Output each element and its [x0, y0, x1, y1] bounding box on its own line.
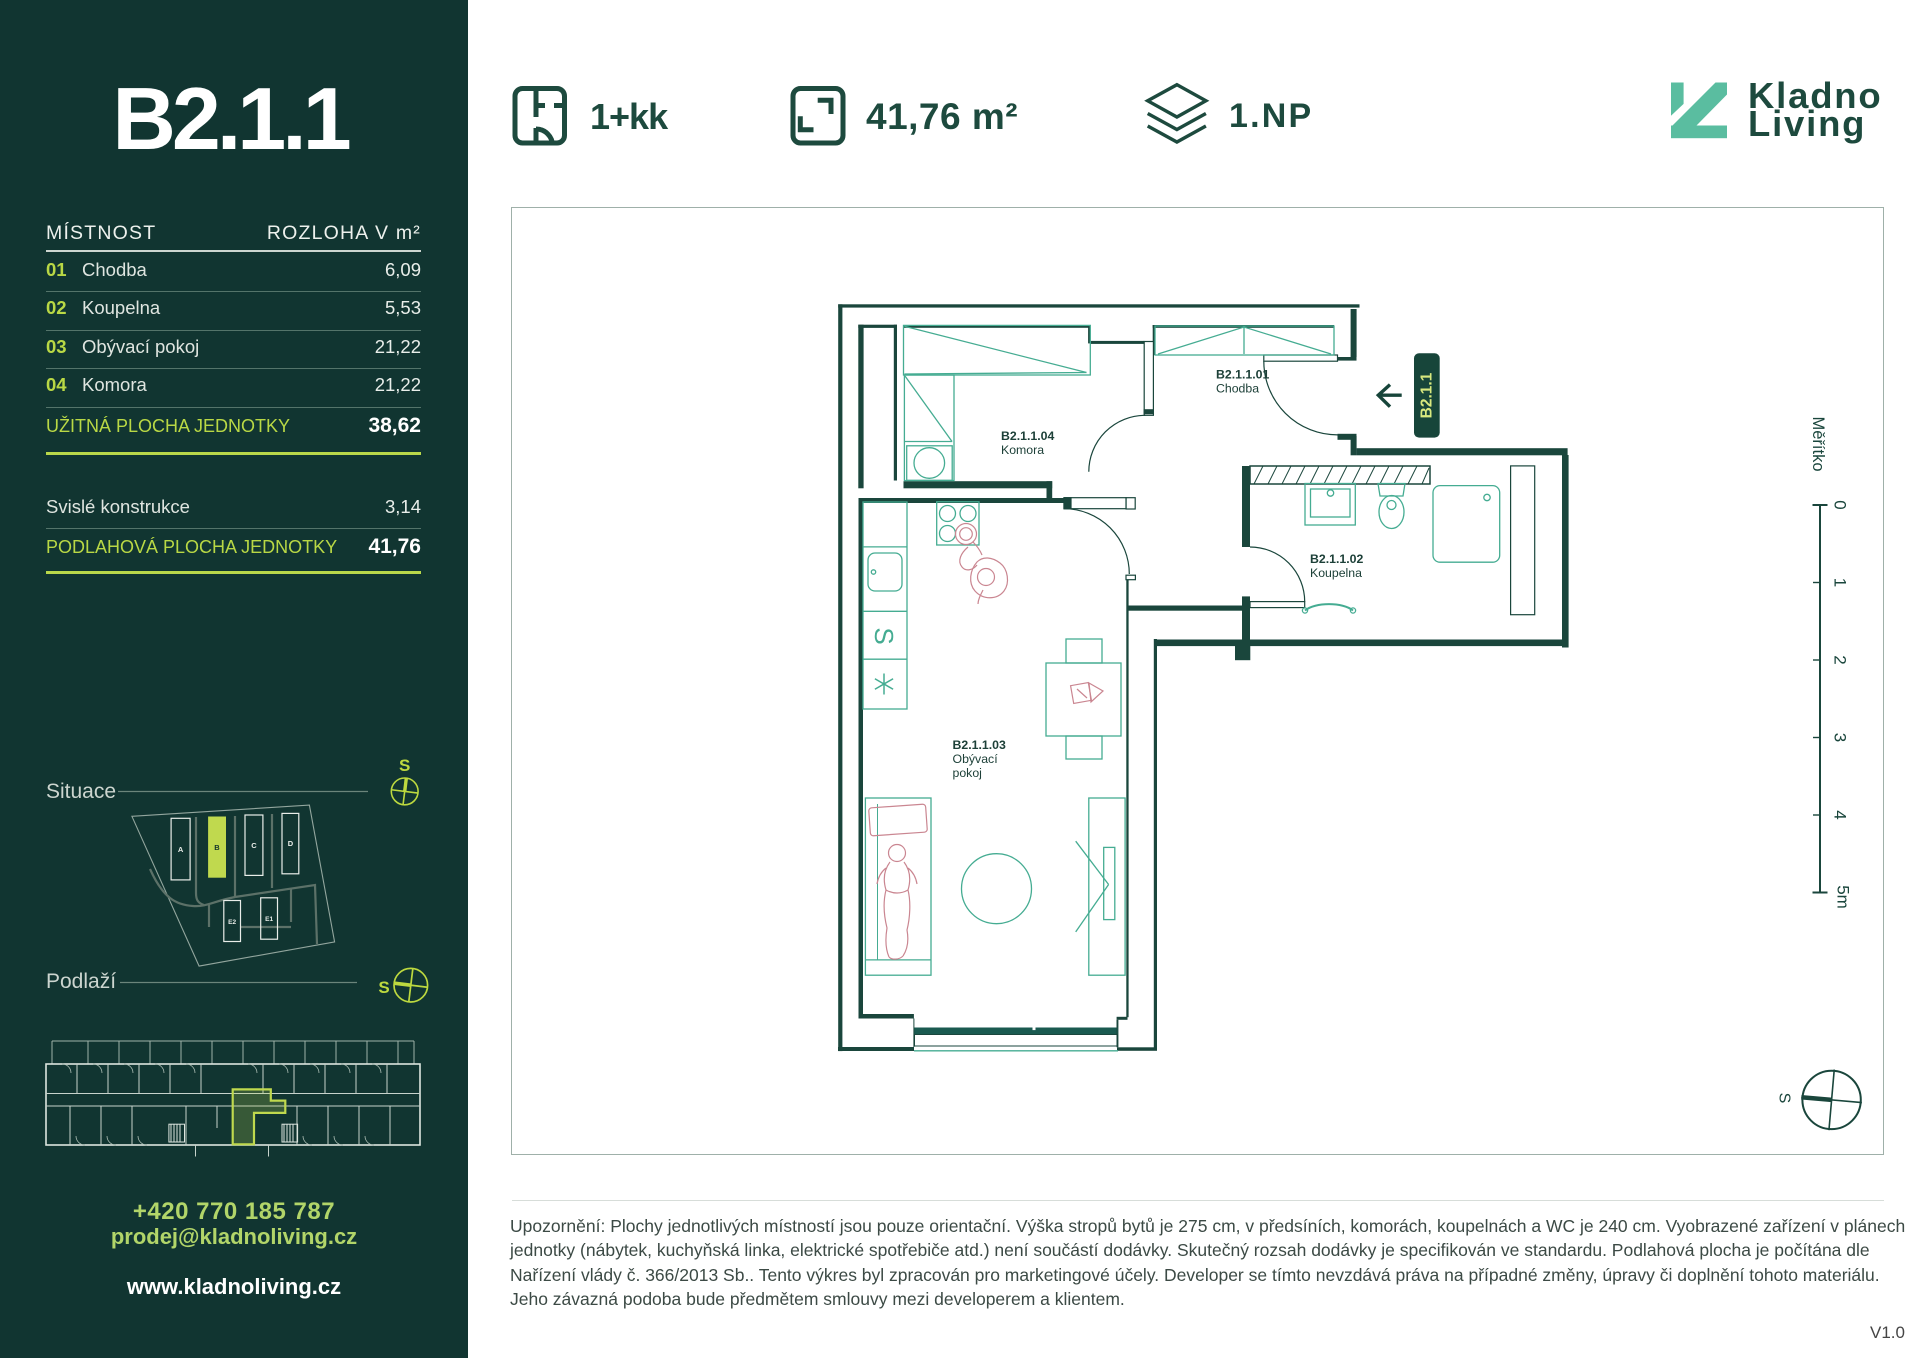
- svg-text:B2.1.1.02: B2.1.1.02: [1310, 552, 1363, 566]
- svg-text:B2.1.1.03: B2.1.1.03: [953, 738, 1006, 752]
- svg-text:4: 4: [1831, 810, 1850, 819]
- svg-text:S: S: [1776, 1093, 1793, 1104]
- svg-text:Měřítko: Měřítko: [1809, 416, 1827, 471]
- svg-text:Obývací: Obývací: [953, 752, 999, 766]
- svg-text:B2.1.1.01: B2.1.1.01: [1216, 368, 1269, 382]
- svg-text:pokoj: pokoj: [953, 766, 982, 780]
- svg-text:3: 3: [1831, 733, 1850, 742]
- svg-text:S: S: [869, 627, 899, 644]
- svg-text:5m: 5m: [1834, 885, 1853, 909]
- svg-text:B2.1.1.04: B2.1.1.04: [1001, 429, 1054, 443]
- svg-text:Koupelna: Koupelna: [1310, 566, 1362, 580]
- svg-text:2: 2: [1831, 655, 1850, 664]
- svg-text:Komora: Komora: [1001, 443, 1044, 457]
- svg-text:B2.1.1: B2.1.1: [1418, 372, 1435, 418]
- svg-text:0: 0: [1831, 500, 1850, 509]
- svg-text:Chodba: Chodba: [1216, 382, 1259, 396]
- svg-text:1: 1: [1831, 578, 1850, 587]
